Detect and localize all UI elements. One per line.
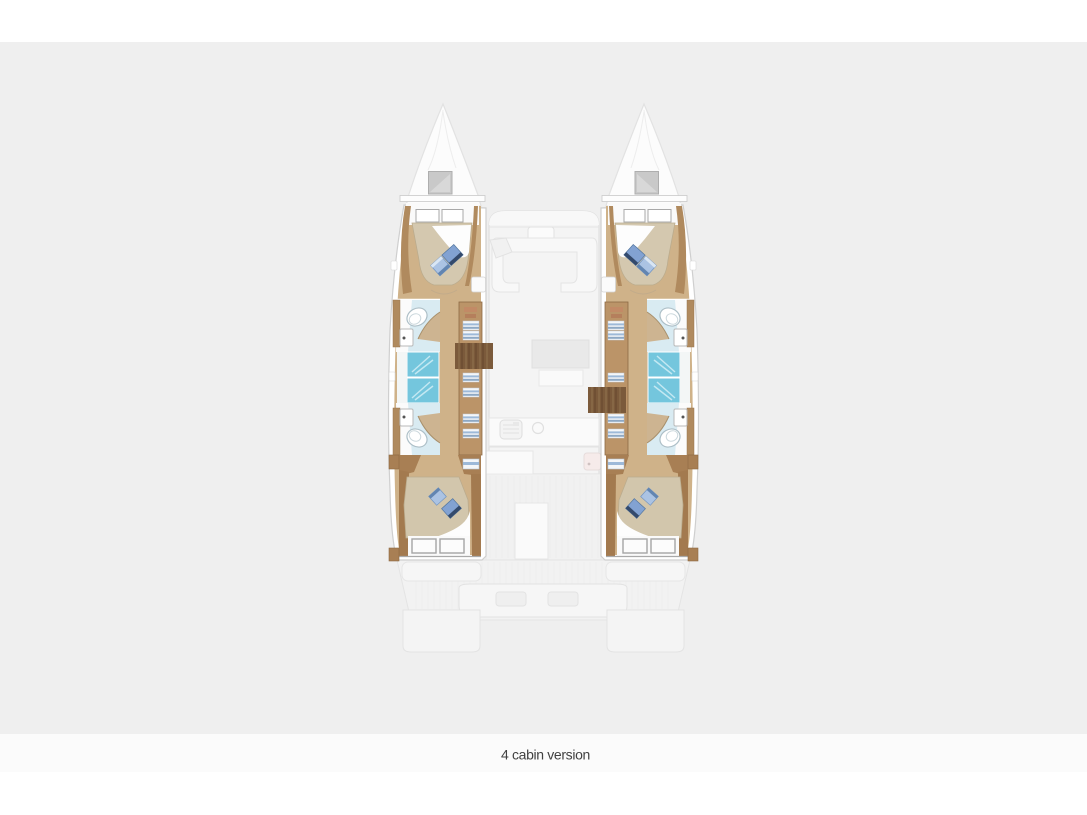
svg-text:4 cabin version: 4 cabin version [501, 747, 590, 763]
